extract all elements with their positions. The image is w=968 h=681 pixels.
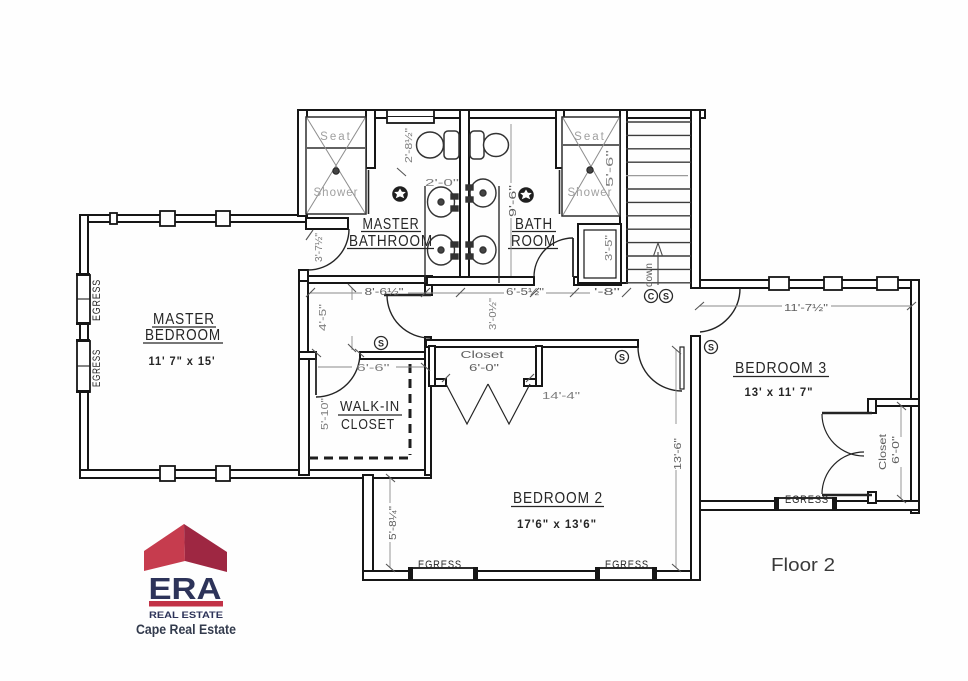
svg-text:ERA: ERA: [149, 571, 222, 606]
svg-text:Seat: Seat: [320, 131, 352, 143]
svg-text:3'-0½": 3'-0½": [488, 298, 499, 330]
svg-text:5'-8¼": 5'-8¼": [387, 505, 399, 540]
svg-text:C: C: [648, 292, 655, 302]
svg-text:4'-5": 4'-5": [318, 303, 329, 331]
svg-text:13' x 11' 7": 13' x 11' 7": [745, 385, 814, 399]
svg-text:EGRESS: EGRESS: [605, 559, 649, 571]
svg-text:2'-8½": 2'-8½": [404, 127, 415, 163]
svg-text:EGRESS: EGRESS: [785, 494, 829, 506]
svg-text:BEDROOM 2: BEDROOM 2: [513, 490, 603, 507]
svg-text:EGRESS: EGRESS: [91, 279, 103, 321]
svg-text:BEDROOM 3: BEDROOM 3: [735, 360, 827, 377]
svg-text:REAL ESTATE: REAL ESTATE: [149, 610, 223, 621]
svg-text:S: S: [708, 343, 714, 353]
svg-text:BATH: BATH: [515, 216, 553, 233]
svg-text:down: down: [644, 263, 655, 287]
svg-text:6'-0": 6'-0": [469, 363, 500, 374]
svg-text:Floor 2: Floor 2: [771, 554, 835, 575]
svg-text:ROOM: ROOM: [511, 233, 556, 250]
svg-text:EGRESS: EGRESS: [91, 349, 103, 387]
svg-text:Closet: Closet: [878, 434, 889, 470]
svg-text:6'-0": 6'-0": [891, 435, 902, 464]
svg-text:17'6" x 13'6": 17'6" x 13'6": [517, 517, 597, 531]
svg-text:MASTER: MASTER: [363, 216, 420, 233]
svg-text:3'-5": 3'-5": [604, 234, 615, 261]
svg-text:5'-6": 5'-6": [605, 149, 616, 187]
svg-text:MASTER: MASTER: [153, 311, 215, 328]
svg-text:WALK-IN: WALK-IN: [340, 398, 400, 415]
svg-text:5'-10": 5'-10": [320, 397, 331, 430]
svg-text:'-8": '-8": [594, 287, 621, 298]
svg-text:8'-6½": 8'-6½": [365, 287, 405, 298]
svg-text:CLOSET: CLOSET: [341, 416, 395, 433]
svg-text:Shower: Shower: [314, 187, 359, 199]
svg-text:13'-6": 13'-6": [673, 437, 684, 470]
svg-text:Closet: Closet: [461, 350, 504, 361]
svg-text:11' 7" x 15': 11' 7" x 15': [149, 354, 216, 368]
svg-text:Cape Real Estate: Cape Real Estate: [136, 622, 236, 637]
svg-text:S: S: [663, 292, 669, 302]
svg-text:14'-4": 14'-4": [542, 391, 581, 402]
svg-text:S: S: [378, 339, 384, 349]
svg-text:BATHROOM: BATHROOM: [349, 233, 433, 250]
svg-text:6'-5½": 6'-5½": [506, 287, 545, 298]
svg-text:Shower: Shower: [568, 187, 613, 199]
svg-text:S: S: [619, 353, 625, 363]
svg-text:EGRESS: EGRESS: [418, 559, 462, 571]
svg-text:3'-7½": 3'-7½": [314, 233, 325, 262]
svg-text:9'-6": 9'-6": [508, 184, 519, 217]
svg-text:11'-7½": 11'-7½": [784, 303, 829, 314]
svg-text:2'-0": 2'-0": [425, 178, 460, 189]
svg-text:Seat: Seat: [574, 131, 606, 143]
svg-text:6'-6": 6'-6": [357, 363, 391, 374]
svg-text:BEDROOM: BEDROOM: [145, 327, 221, 344]
